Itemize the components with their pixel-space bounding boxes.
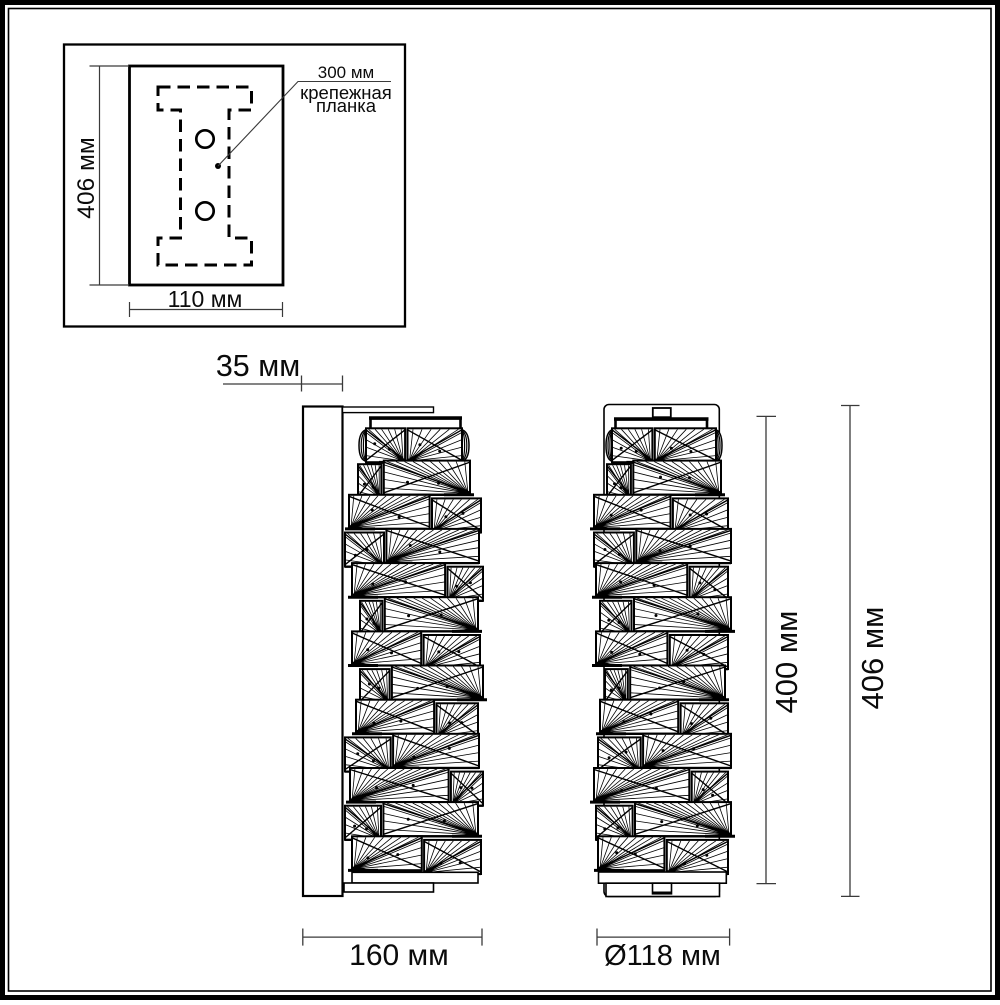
svg-text:406 мм: 406 мм xyxy=(73,137,100,218)
svg-text:110 мм: 110 мм xyxy=(168,286,243,312)
svg-text:Ø118 мм: Ø118 мм xyxy=(604,940,721,972)
svg-text:300 мм: 300 мм xyxy=(318,63,374,82)
svg-text:35 мм: 35 мм xyxy=(216,349,300,383)
svg-text:400 мм: 400 мм xyxy=(769,611,804,714)
svg-text:406 мм: 406 мм xyxy=(855,607,890,710)
svg-text:планка: планка xyxy=(316,95,377,116)
svg-text:160 мм: 160 мм xyxy=(349,939,449,972)
